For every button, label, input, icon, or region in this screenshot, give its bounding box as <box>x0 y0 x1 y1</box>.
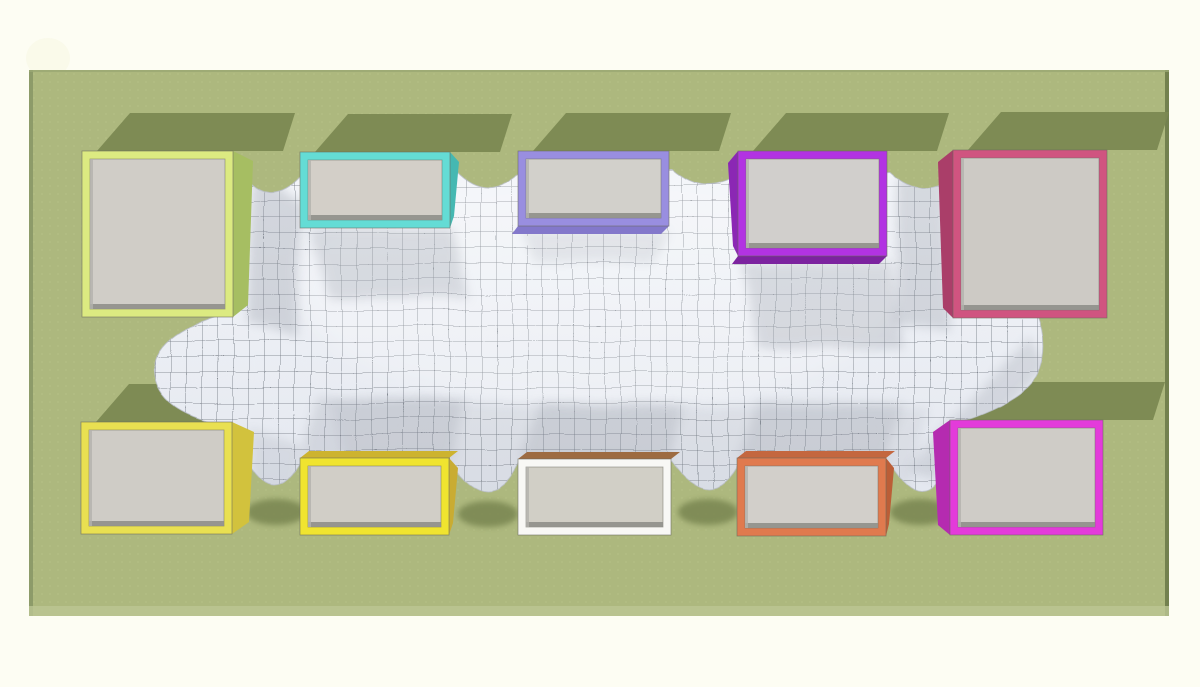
box-top-4-face <box>746 159 879 248</box>
box-bottom-2-top-face <box>300 451 458 458</box>
ground-shadow-box-top-3 <box>533 113 731 151</box>
box-top-5-face <box>961 158 1099 310</box>
box-top-1-face-left-shade <box>90 159 93 309</box>
box-bottom-5-face-left-shade <box>958 428 961 527</box>
cloth-shadow-9 <box>739 400 905 459</box>
box-bottom-4-face-left-shade <box>745 466 748 528</box>
render-viewport <box>0 0 1200 687</box>
ground-edge-left <box>29 70 33 616</box>
box-bottom-4-face-bottom-shade <box>745 523 878 528</box>
box-bottom-4 <box>737 451 895 536</box>
box-top-4-bottom-face <box>732 256 887 264</box>
box-bottom-2-face-bottom-shade <box>308 522 441 527</box>
box-top-5-face-bottom-shade <box>961 305 1099 310</box>
box-top-3-bottom-face <box>512 226 669 234</box>
box-top-5-face-left-shade <box>961 158 964 310</box>
box-top-3-face-left-shade <box>526 159 529 218</box>
cloth-shadow-3 <box>520 230 668 264</box>
scene-canvas <box>0 0 1200 687</box>
box-top-3-face-bottom-shade <box>526 213 661 218</box>
box-top-4-face-bottom-shade <box>746 243 879 248</box>
cloth-shadow-4 <box>740 262 904 348</box>
box-bottom-1 <box>81 422 254 534</box>
box-bottom-3 <box>518 452 680 535</box>
box-bottom-3-face-bottom-shade <box>526 522 663 527</box>
cloth-shadow-2 <box>310 228 468 298</box>
drape-shadow-1 <box>246 499 306 525</box>
box-bottom-4-face <box>745 466 878 528</box>
box-bottom-3-top-face <box>518 452 680 459</box>
box-bottom-1-face-left-shade <box>89 430 92 526</box>
box-bottom-5-face <box>958 428 1095 527</box>
box-bottom-1-face-bottom-shade <box>89 521 224 526</box>
drape-shadow-2 <box>458 501 518 527</box>
ground-edge-right <box>1165 70 1169 616</box>
box-top-2-face <box>308 160 442 220</box>
box-bottom-3-face <box>526 467 663 527</box>
ground-shadow-box-top-2 <box>315 114 512 152</box>
box-bottom-4-top-face <box>737 451 895 458</box>
box-top-5 <box>938 150 1107 318</box>
box-bottom-5-face-bottom-shade <box>958 522 1095 527</box>
box-top-2-face-left-shade <box>308 160 311 220</box>
ground-edge-bottom <box>29 606 1169 616</box>
box-top-1-face <box>90 159 225 309</box>
box-top-4-face-left-shade <box>746 159 749 248</box>
box-top-2 <box>300 152 459 228</box>
box-bottom-2-face <box>308 466 441 527</box>
cloth-shadow-8 <box>520 404 685 460</box>
ground-shadow-box-top-4 <box>753 113 949 151</box>
box-top-2-face-bottom-shade <box>308 215 442 220</box>
box-bottom-2-face-left-shade <box>308 466 311 527</box>
ground-edge-top <box>29 70 1169 72</box>
box-top-1 <box>82 151 253 317</box>
box-bottom-2 <box>300 451 458 535</box>
drape-shadow-3 <box>678 499 738 525</box>
box-bottom-3-face-left-shade <box>526 467 529 527</box>
ground-shadow-box-top-1 <box>97 113 295 151</box>
box-bottom-1-face <box>89 430 224 526</box>
box-top-3-face <box>526 159 661 218</box>
ground-shadow-box-top-5 <box>968 112 1169 150</box>
box-bottom-5 <box>933 420 1103 535</box>
cloth-shadow-7 <box>302 396 465 459</box>
box-top-1-face-bottom-shade <box>90 304 225 309</box>
box-top-3 <box>512 151 669 234</box>
box-top-4 <box>728 151 887 264</box>
